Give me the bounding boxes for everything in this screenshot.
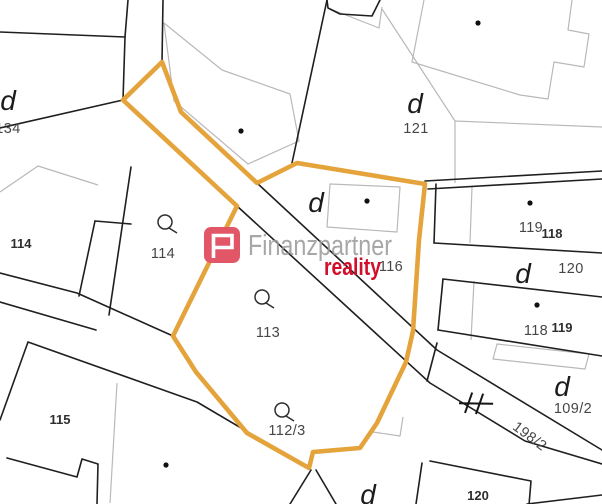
parcel-label-118: 118 [524,323,548,339]
watermark-sub-text: reality [324,254,382,281]
building-dot [364,198,369,203]
landuse-label-d: d [515,258,532,289]
cadastral-map: 134121119118120118119116109/2114113112/3… [0,0,602,504]
parcel-label-121: 121 [403,121,428,137]
landuse-label-d: d [0,85,17,116]
landuse-label-d: d [407,88,424,119]
parcel-label-114: 114 [151,246,175,262]
cadastral-map-canvas: 134121119118120118119116109/2114113112/3… [0,0,602,504]
parcel-label-115: 115 [50,412,71,427]
parcel-label-134: 134 [0,121,21,137]
building-dot [475,20,480,25]
parcel-label-112-3: 112/3 [268,423,305,439]
parcel-label-114: 114 [11,236,33,251]
landuse-label-d: d [308,187,325,218]
parcel-label-119: 119 [552,320,573,335]
parcel-label-120: 120 [467,488,489,503]
parcel-label-119: 119 [519,220,543,236]
building-dot [238,128,243,133]
building-dot [534,302,539,307]
building-dot [527,200,532,205]
building-dot [163,462,168,467]
parcel-label-120: 120 [558,261,583,277]
landuse-label-d: d [554,371,571,402]
landuse-label-d: d [360,479,377,504]
brand-icon [204,227,240,263]
parcel-label-113: 113 [256,325,280,341]
parcel-label-118: 118 [542,226,563,241]
parcel-label-109-2: 109/2 [554,401,592,417]
parcel-boundary [162,0,163,62]
